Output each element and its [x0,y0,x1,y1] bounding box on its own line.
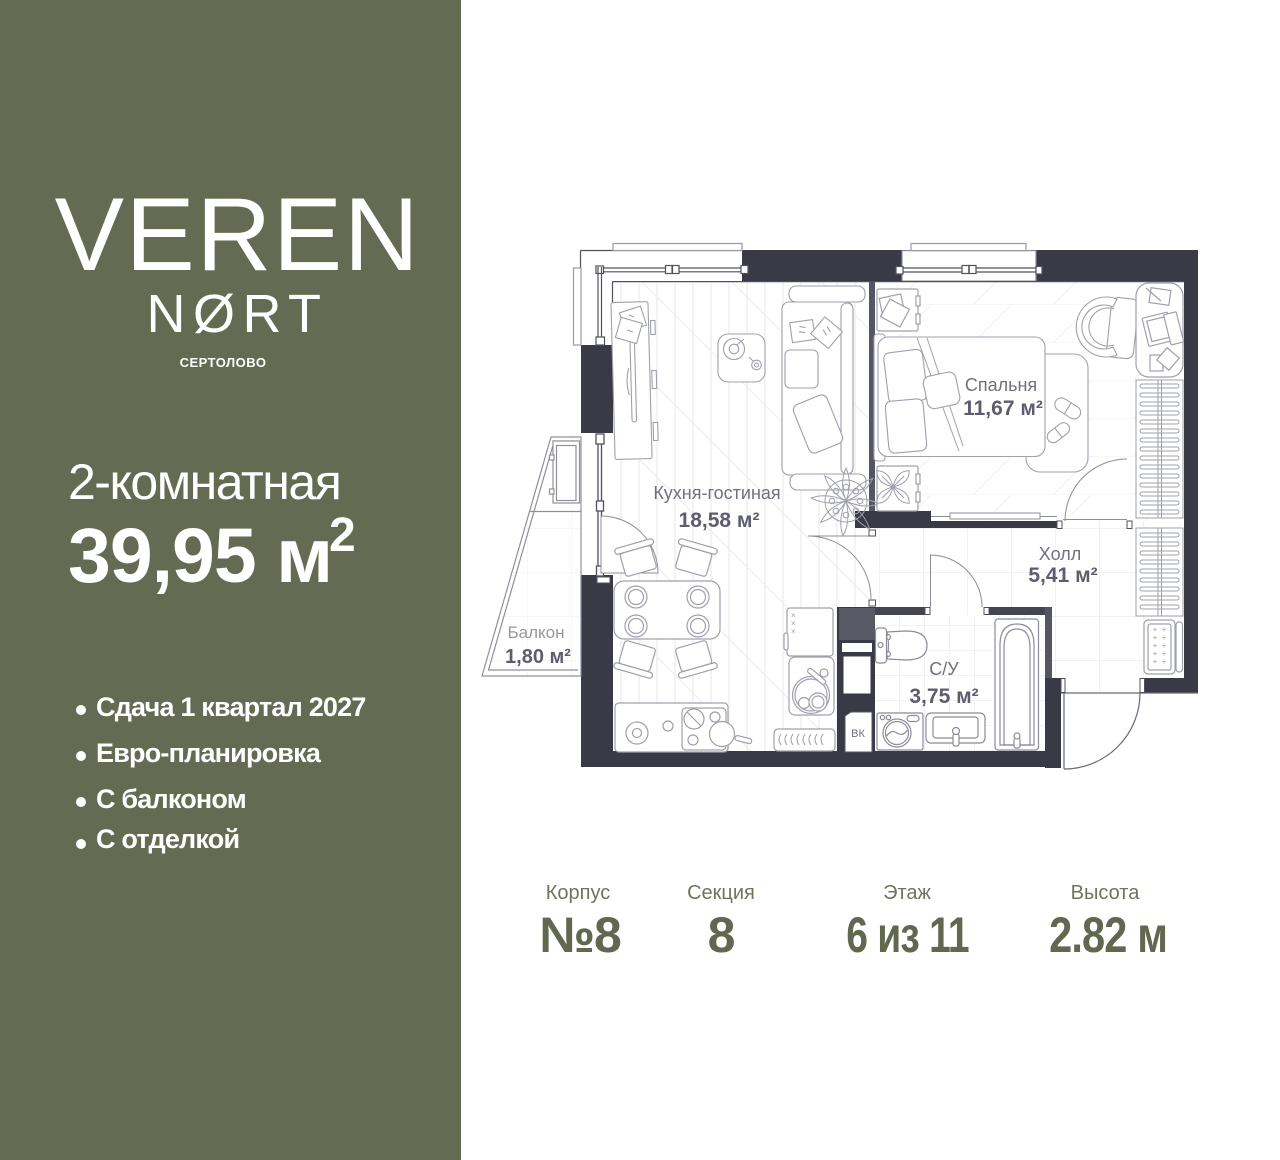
svg-text:×: × [791,627,796,636]
svg-text:Спальня: Спальня [965,375,1037,395]
svg-text:5,41 м²: 5,41 м² [1028,564,1097,587]
svg-text:С/У: С/У [929,659,959,679]
svg-text:1,80 м²: 1,80 м² [505,646,571,668]
svg-text:+: + [1153,657,1158,666]
svg-text:Балкон: Балкон [507,623,564,642]
svg-text:+: + [1162,657,1167,666]
svg-text:3,75 м²: 3,75 м² [909,685,978,708]
svg-text:Кухня-гостиная: Кухня-гостиная [653,483,780,503]
svg-text:18,58 м²: 18,58 м² [679,509,760,532]
svg-text:11,67 м²: 11,67 м² [963,397,1043,420]
svg-text:Холл: Холл [1039,544,1081,564]
svg-text:ВК: ВК [851,728,865,740]
